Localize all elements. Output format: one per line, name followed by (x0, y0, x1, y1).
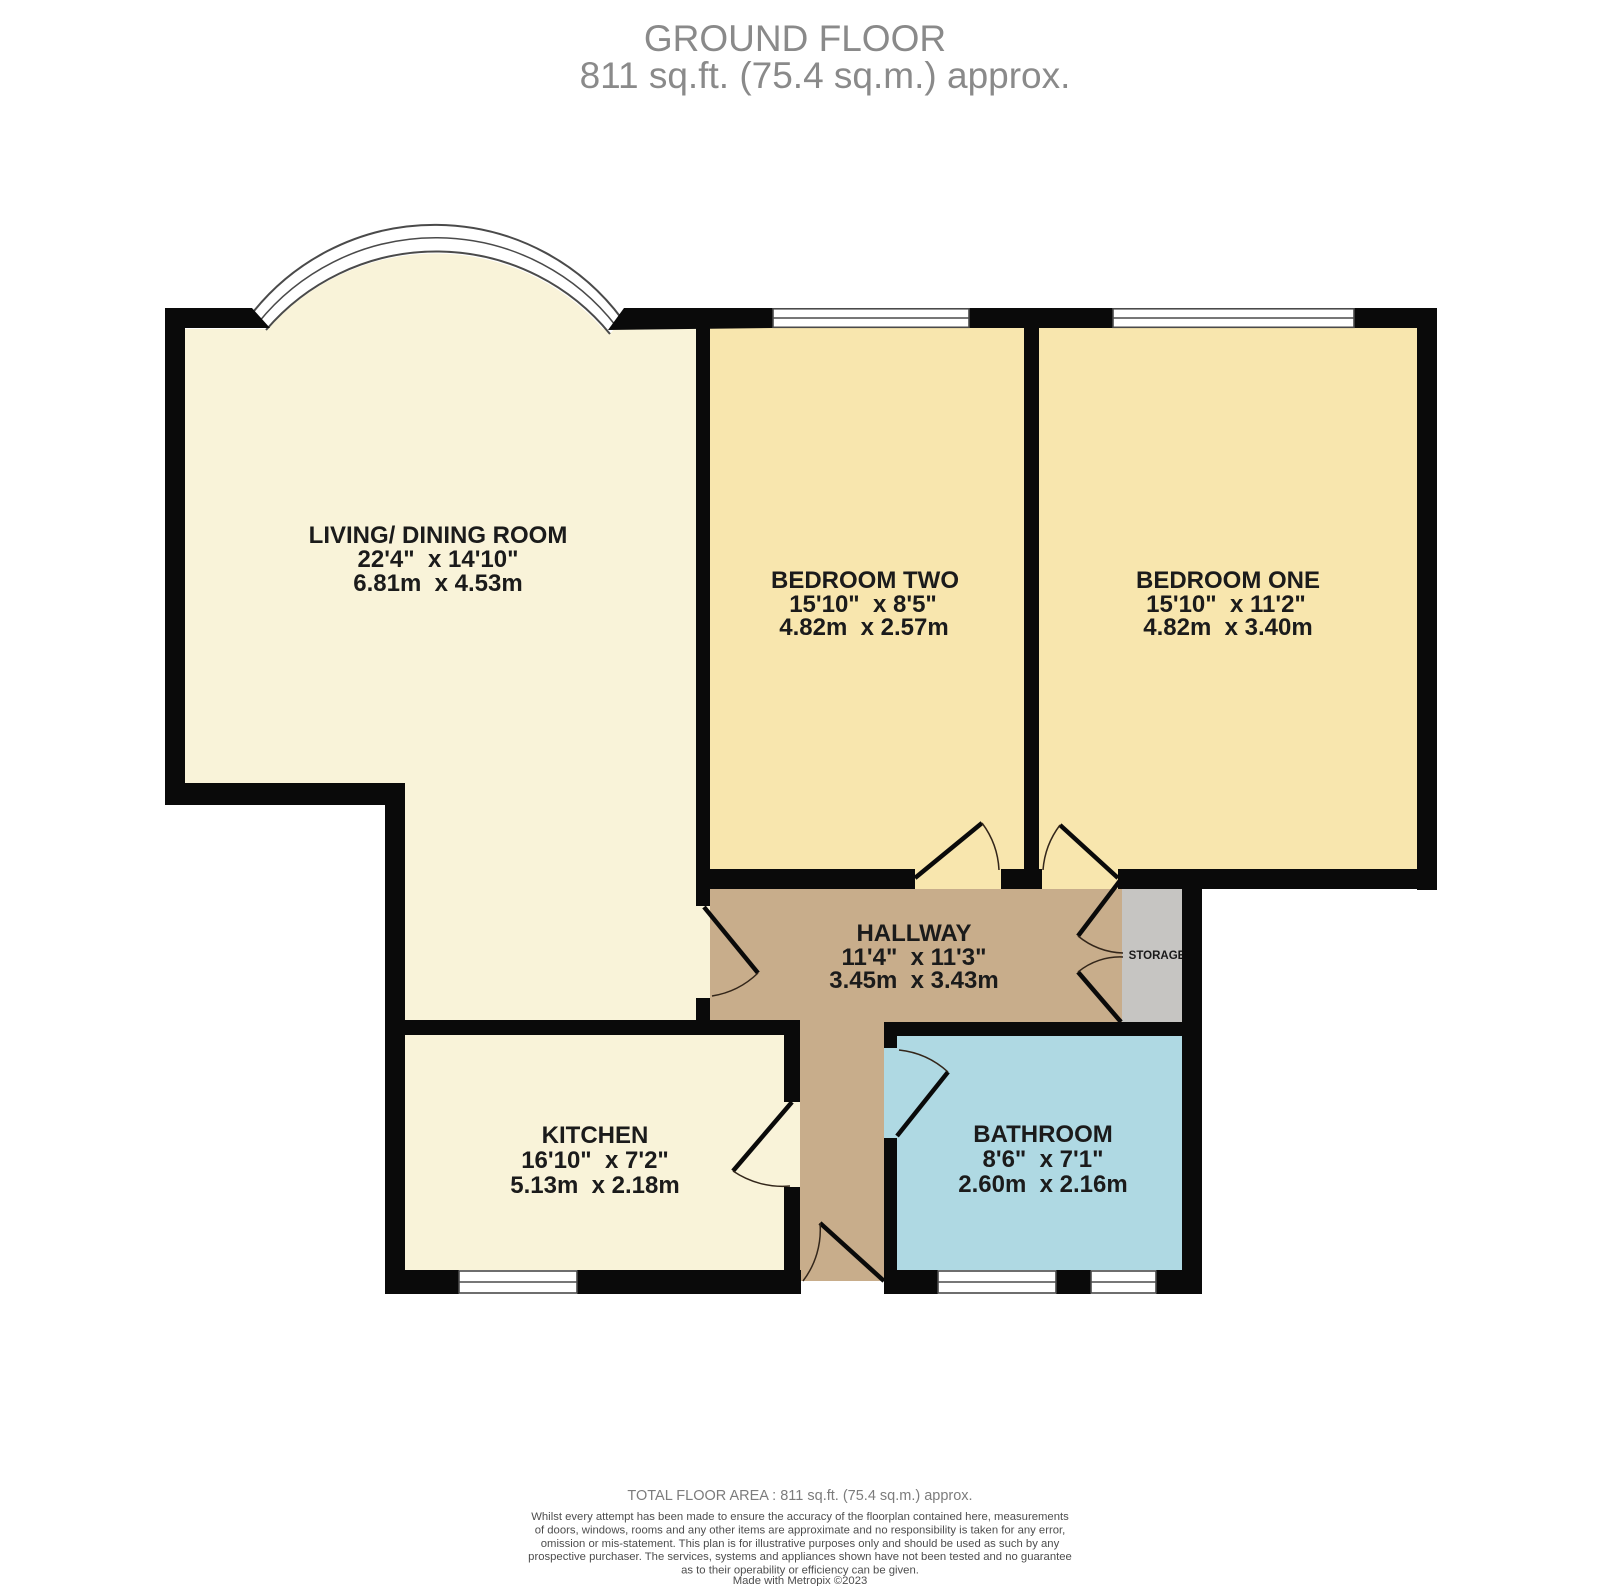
svg-text:8'6" x 7'1": 8'6" x 7'1" (983, 1146, 1104, 1173)
svg-text:2.60m x 2.16m: 2.60m x 2.16m (958, 1171, 1127, 1198)
svg-text:HALLWAY: HALLWAY (856, 920, 971, 947)
svg-text:BEDROOM ONE: BEDROOM ONE (1136, 567, 1320, 594)
svg-text:BATHROOM: BATHROOM (973, 1121, 1113, 1148)
svg-text:3.45m x 3.43m: 3.45m x 3.43m (829, 967, 998, 994)
svg-text:16'10" x 7'2": 16'10" x 7'2" (521, 1147, 669, 1174)
svg-text:Whilst every attempt has been: Whilst every attempt has been made to en… (531, 1511, 1069, 1523)
svg-text:of doors, windows, rooms and a: of doors, windows, rooms and any other i… (535, 1525, 1066, 1537)
svg-text:4.82m x 3.40m: 4.82m x 3.40m (1143, 614, 1312, 641)
svg-text:LIVING/ DINING ROOM: LIVING/ DINING ROOM (309, 522, 568, 549)
svg-text:4.82m x 2.57m: 4.82m x 2.57m (779, 614, 948, 641)
svg-text:prospective purchaser. The ser: prospective purchaser. The services, sys… (528, 1551, 1072, 1563)
svg-text:811 sq.ft. (75.4 sq.m.) approx: 811 sq.ft. (75.4 sq.m.) approx. (580, 55, 1071, 96)
svg-text:Made with Metropix ©2023: Made with Metropix ©2023 (733, 1575, 868, 1586)
svg-text:6.81m x 4.53m: 6.81m x 4.53m (353, 570, 522, 597)
svg-text:KITCHEN: KITCHEN (542, 1122, 649, 1149)
svg-text:TOTAL FLOOR AREA : 811 sq.ft.: TOTAL FLOOR AREA : 811 sq.ft. (75.4 sq.m… (627, 1488, 972, 1504)
svg-text:GROUND FLOOR: GROUND FLOOR (644, 18, 946, 59)
svg-text:STORAGE: STORAGE (1129, 950, 1186, 962)
svg-text:BEDROOM TWO: BEDROOM TWO (771, 567, 959, 594)
svg-text:omission or mis-statement. Thi: omission or mis-statement. This plan is … (541, 1538, 1060, 1550)
svg-text:5.13m x 2.18m: 5.13m x 2.18m (510, 1172, 679, 1199)
svg-text:22'4" x 14'10": 22'4" x 14'10" (358, 546, 519, 573)
